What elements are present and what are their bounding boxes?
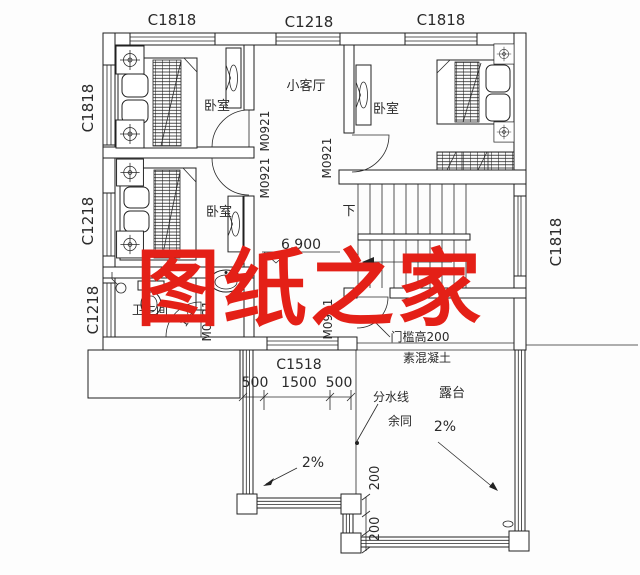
dim-south-1: 500 [242,375,269,391]
dim-south-2: 1500 [281,375,317,391]
door-label-bedroom3: M0921 [320,138,334,179]
slope-label-left: 2% [302,455,324,471]
railing-left [243,350,253,496]
closet [437,152,514,170]
tv-cabinet [356,65,371,125]
door-arc-bedroom3 [352,135,389,172]
room-label-living: 小客厅 [286,78,325,94]
window-label-right: C1818 [547,218,565,267]
canopy-outline [88,350,240,398]
room-label-bedroom2: 卧室 [206,204,232,220]
window-label-left-middle: C1218 [79,197,97,246]
window-label-top-left: C1818 [148,11,197,29]
terrace-threshold-lines [357,343,514,350]
floor-plan-page: C1818 C1218 C1818 C1818 C1218 C1218 C181… [0,0,640,575]
window-top-left [130,33,215,45]
door-label-bedroom2: M0921 [258,158,272,199]
window-label-left-upper: C1818 [79,84,97,133]
railing-post [341,494,361,514]
nightstand [116,46,144,74]
railing-step [343,514,353,533]
slope-arrow-right [438,442,495,489]
terrace [237,319,529,553]
note-same-as: 余同 [388,413,412,428]
railing-right [503,350,525,531]
railing-post [509,531,529,551]
window-label-top-right: C1818 [417,11,466,29]
railing-bottom-left [257,498,341,508]
stair-down-label: 下 [342,204,355,219]
bed-bedroom3 [437,60,514,124]
nightstand [116,120,144,148]
room-label-bedroom3: 卧室 [373,101,399,117]
water-line-leader [357,404,378,441]
room-label-terrace: 露台 [439,386,465,401]
dimension-south [239,390,355,410]
window-left-lower [103,283,115,337]
window-label-top-center: C1218 [285,13,334,31]
nightstand [117,159,144,186]
railing-bottom-right [361,537,509,547]
window-left-upper [103,65,115,145]
note-concrete: 素混凝土 [403,350,451,365]
window-top-center [276,33,340,45]
note-water-line: 分水线 [373,390,409,404]
slope-label-right: 2% [434,419,456,435]
window-left-middle [103,193,115,256]
railing-post [237,494,257,514]
nightstand [494,44,514,64]
dim-south-3: 500 [326,375,353,391]
window-top-right [405,33,477,45]
window-label-south: C1518 [276,357,321,373]
door-arc-bedroom2 [212,158,249,195]
railing-post [341,533,361,553]
dim-step-2: 200 [368,517,383,542]
door-arc-bedroom1 [212,110,249,147]
watermark: 图纸之家 [136,246,516,341]
window-label-left-lower: C1218 [84,286,102,335]
nightstand [494,122,514,142]
door-label-bedroom1: M0921 [258,111,272,152]
dim-step-1: 200 [368,466,383,491]
room-label-bedroom1: 卧室 [204,98,230,114]
